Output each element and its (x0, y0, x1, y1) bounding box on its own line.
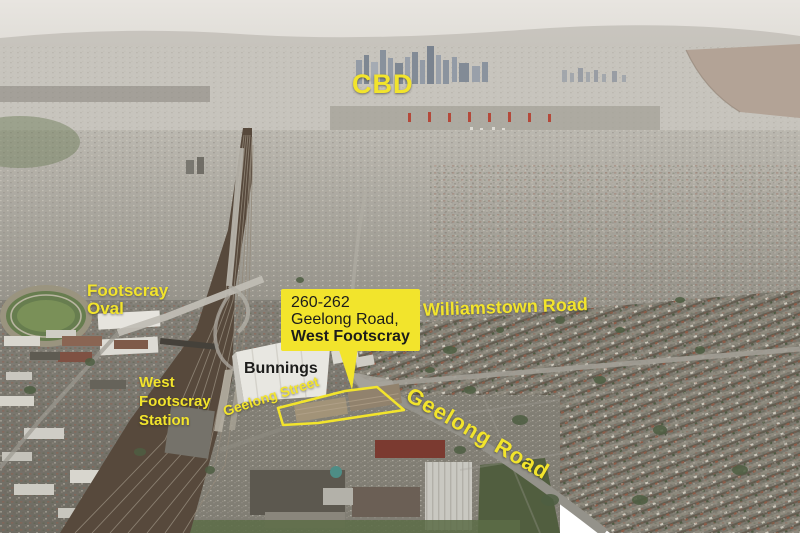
callout-pointer (338, 347, 358, 390)
callout-street-name: Geelong Road, (291, 311, 410, 328)
property-address-callout: 260-262 Geelong Road, West Footscray (281, 289, 420, 351)
annotated-aerial-map: CBD Footscray Oval Williamstown Road Bun… (0, 0, 800, 533)
cbd-label: CBD (352, 70, 414, 99)
callout-suburb: West Footscray (291, 328, 410, 345)
footscray-oval-label-line1: Footscray (87, 282, 168, 300)
callout-street-number: 260-262 (291, 294, 410, 311)
station-label-line3: Station (139, 411, 211, 430)
footscray-oval-label: Footscray Oval (87, 282, 168, 318)
west-footscray-station-label: West Footscray Station (139, 373, 211, 430)
station-label-line1: West (139, 373, 211, 392)
station-label-line2: Footscray (139, 392, 211, 411)
footscray-oval-label-line2: Oval (87, 300, 168, 318)
